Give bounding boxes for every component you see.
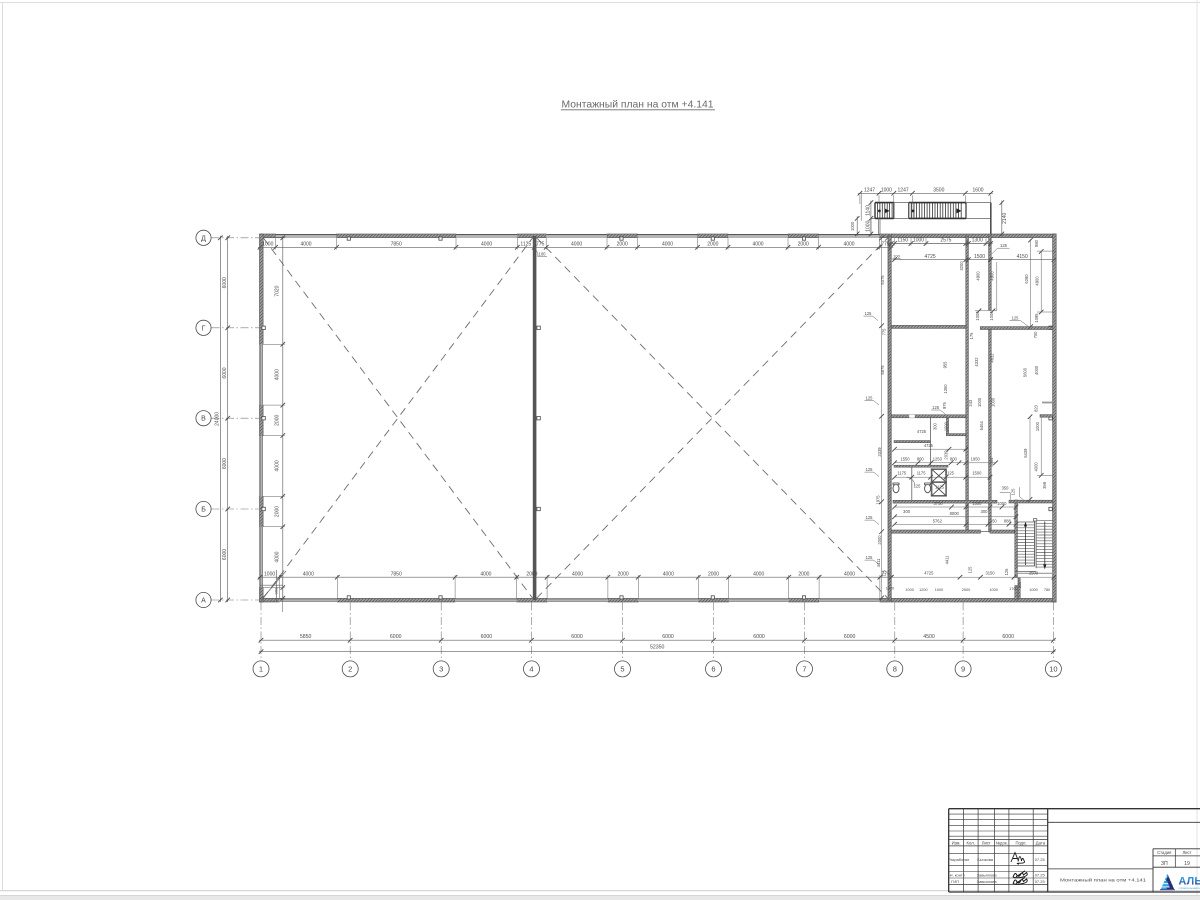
svg-text:2140: 2140 <box>1002 213 1008 224</box>
svg-text:7: 7 <box>802 665 806 674</box>
svg-text:5850: 5850 <box>300 634 312 640</box>
svg-text:4000: 4000 <box>1033 462 1038 472</box>
svg-text:4000: 4000 <box>275 369 281 380</box>
svg-text:820: 820 <box>1034 404 1039 412</box>
svg-text:4411: 4411 <box>945 555 950 565</box>
svg-text:125: 125 <box>1012 316 1020 321</box>
svg-text:строительная компания: строительная компания <box>1179 886 1200 890</box>
svg-text:4000: 4000 <box>663 571 674 577</box>
svg-text:4000: 4000 <box>300 242 311 248</box>
svg-text:Лист: Лист <box>1182 850 1191 855</box>
svg-text:243: 243 <box>968 399 973 407</box>
svg-text:1000: 1000 <box>935 588 943 592</box>
svg-text:2000: 2000 <box>617 242 628 248</box>
svg-text:775: 775 <box>882 328 887 336</box>
svg-text:800: 800 <box>917 456 925 461</box>
svg-text:4900: 4900 <box>976 271 981 281</box>
svg-text:1000: 1000 <box>989 311 994 321</box>
svg-text:1095: 1095 <box>1034 313 1039 323</box>
svg-text:3750: 3750 <box>934 501 944 506</box>
svg-text:1000: 1000 <box>850 221 855 231</box>
svg-text:1500: 1500 <box>974 254 985 260</box>
svg-text:4000: 4000 <box>753 571 764 577</box>
svg-text:4725: 4725 <box>924 443 934 448</box>
svg-text:4632: 4632 <box>990 353 995 363</box>
svg-text:52350: 52350 <box>650 644 665 650</box>
svg-text:Разработал: Разработал <box>948 857 969 862</box>
svg-text:ГИП: ГИП <box>951 879 959 884</box>
svg-text:1000: 1000 <box>944 421 949 431</box>
svg-text:1000: 1000 <box>997 501 1007 506</box>
svg-text:Д: Д <box>201 235 206 242</box>
svg-text:Монтажный план на отм +4.141: Монтажный план на отм +4.141 <box>1060 876 1147 882</box>
svg-text:6280: 6280 <box>1024 274 1029 284</box>
svg-text:775: 775 <box>882 569 887 577</box>
svg-text:4000: 4000 <box>752 242 763 248</box>
svg-text:1000: 1000 <box>264 571 275 577</box>
svg-text:2: 2 <box>348 665 352 674</box>
svg-text:Лист: Лист <box>982 841 991 846</box>
svg-text:10: 10 <box>1049 665 1057 674</box>
svg-text:2500: 2500 <box>962 588 970 592</box>
svg-text:4000: 4000 <box>303 571 314 577</box>
svg-text:125: 125 <box>967 566 972 574</box>
svg-text:100: 100 <box>893 253 900 258</box>
svg-text:9: 9 <box>961 665 965 674</box>
svg-text:4000: 4000 <box>844 571 855 577</box>
svg-text:07.25: 07.25 <box>1035 872 1046 877</box>
svg-text:6000: 6000 <box>662 634 674 640</box>
svg-text:1700: 1700 <box>1009 587 1017 591</box>
svg-text:1250: 1250 <box>933 456 943 461</box>
svg-text:2000: 2000 <box>877 535 882 545</box>
svg-text:3339: 3339 <box>877 447 882 457</box>
svg-text:4000: 4000 <box>571 242 582 248</box>
svg-text:В: В <box>201 416 206 423</box>
svg-text:800: 800 <box>950 456 958 461</box>
svg-text:7850: 7850 <box>391 571 402 577</box>
svg-text:Стадия: Стадия <box>1157 850 1171 855</box>
svg-text:2000: 2000 <box>798 242 809 248</box>
svg-text:1000: 1000 <box>881 188 892 194</box>
svg-text:1000: 1000 <box>977 397 982 407</box>
svg-text:350: 350 <box>1002 485 1010 490</box>
svg-text:975: 975 <box>942 401 947 409</box>
svg-text:5564: 5564 <box>989 457 994 467</box>
svg-text:Завьялова: Завьялова <box>977 879 998 884</box>
svg-text:1500: 1500 <box>972 501 982 506</box>
svg-text:4000: 4000 <box>572 571 583 577</box>
svg-text:125: 125 <box>865 311 873 316</box>
svg-text:6000: 6000 <box>481 634 493 640</box>
svg-text:8000: 8000 <box>950 511 960 516</box>
svg-text:175: 175 <box>969 332 974 340</box>
svg-text:125: 125 <box>1011 488 1016 496</box>
svg-text:Завьялова: Завьялова <box>977 872 998 877</box>
svg-text:1: 1 <box>259 665 263 674</box>
svg-text:1300: 1300 <box>972 238 983 244</box>
svg-text:4: 4 <box>529 665 533 674</box>
svg-text:2000: 2000 <box>275 415 281 426</box>
svg-text:6: 6 <box>711 665 715 674</box>
svg-text:7850: 7850 <box>391 242 402 248</box>
svg-text:300: 300 <box>933 422 938 430</box>
svg-text:1320: 1320 <box>886 587 894 591</box>
svg-text:359: 359 <box>1042 481 1047 489</box>
svg-text:6000: 6000 <box>390 634 402 640</box>
svg-text:5439: 5439 <box>1023 448 1028 458</box>
svg-text:100: 100 <box>539 251 547 256</box>
svg-text:300: 300 <box>903 509 911 514</box>
svg-text:8: 8 <box>893 665 897 674</box>
svg-text:1000: 1000 <box>913 238 924 244</box>
svg-text:1000: 1000 <box>905 588 913 592</box>
svg-text:1000: 1000 <box>262 242 273 248</box>
svg-text:2000: 2000 <box>707 242 718 248</box>
svg-text:6000: 6000 <box>571 634 583 640</box>
svg-text:4000: 4000 <box>1034 365 1039 375</box>
svg-text:2500: 2500 <box>1029 571 1039 576</box>
svg-text:125: 125 <box>866 515 874 520</box>
svg-text:Б: Б <box>201 507 206 514</box>
svg-text:07.25: 07.25 <box>1035 857 1046 862</box>
svg-text:1500: 1500 <box>972 471 982 476</box>
svg-text:4000: 4000 <box>843 242 854 248</box>
svg-text:1600: 1600 <box>972 188 983 194</box>
svg-text:Кол.: Кол. <box>967 841 975 846</box>
svg-text:4900: 4900 <box>990 271 995 281</box>
svg-text:1000: 1000 <box>1029 588 1037 592</box>
svg-text:700: 700 <box>1033 331 1038 339</box>
svg-text:2000: 2000 <box>526 571 537 577</box>
svg-text:960: 960 <box>274 587 279 594</box>
svg-text:1200: 1200 <box>919 588 927 592</box>
svg-text:6000: 6000 <box>222 458 228 469</box>
svg-text:3200: 3200 <box>959 261 964 271</box>
svg-text:6000: 6000 <box>222 277 228 288</box>
svg-text:19: 19 <box>1184 861 1190 867</box>
svg-text:125: 125 <box>1000 243 1008 248</box>
svg-text:2000: 2000 <box>618 571 629 577</box>
svg-text:6000: 6000 <box>1002 634 1014 640</box>
svg-text:5762: 5762 <box>933 519 943 524</box>
svg-text:1000: 1000 <box>1035 421 1040 431</box>
svg-text:4150: 4150 <box>1017 254 1028 260</box>
svg-text:125: 125 <box>914 484 922 489</box>
svg-text:1247: 1247 <box>898 188 909 194</box>
svg-text:1140: 1140 <box>865 205 871 216</box>
svg-text:7020: 7020 <box>275 285 281 296</box>
svg-text:1247: 1247 <box>864 188 875 194</box>
svg-text:6000: 6000 <box>844 634 856 640</box>
svg-text:125: 125 <box>1004 568 1009 576</box>
svg-text:980: 980 <box>1034 239 1039 247</box>
svg-text:4500: 4500 <box>923 634 935 640</box>
svg-text:125: 125 <box>866 467 874 472</box>
svg-text:1350: 1350 <box>943 384 948 394</box>
svg-text:1000: 1000 <box>991 397 996 407</box>
svg-text:955: 955 <box>943 361 948 369</box>
svg-text:Дата: Дата <box>1036 841 1046 846</box>
svg-text:4000: 4000 <box>480 571 491 577</box>
svg-text:6000: 6000 <box>222 367 228 378</box>
svg-text:2125: 2125 <box>945 471 955 476</box>
svg-text:125: 125 <box>932 405 940 410</box>
svg-text:4000: 4000 <box>662 242 673 248</box>
svg-text:24000: 24000 <box>215 412 221 426</box>
svg-text:3150: 3150 <box>985 571 995 576</box>
svg-text:4900: 4900 <box>1035 276 1040 286</box>
svg-text:4725: 4725 <box>924 571 934 576</box>
svg-text:1550: 1550 <box>900 456 910 461</box>
svg-text:07.25: 07.25 <box>1035 879 1046 884</box>
svg-text:4000: 4000 <box>481 242 492 248</box>
svg-text:5875: 5875 <box>880 365 885 375</box>
svg-text:1175: 1175 <box>917 471 927 476</box>
svg-text:1125: 1125 <box>520 242 531 248</box>
svg-text:4411: 4411 <box>876 558 881 568</box>
svg-text:А: А <box>201 598 206 605</box>
svg-text:6000: 6000 <box>753 634 765 640</box>
svg-text:2000: 2000 <box>708 571 719 577</box>
svg-text:4725: 4725 <box>917 429 927 434</box>
svg-text:2000: 2000 <box>798 571 809 577</box>
svg-text:125: 125 <box>866 555 874 560</box>
svg-text:780: 780 <box>1044 588 1050 592</box>
svg-text:ЗП: ЗП <box>1161 861 1168 867</box>
svg-text:1125: 1125 <box>935 485 945 490</box>
svg-text:775: 775 <box>881 242 890 248</box>
svg-text:1150: 1150 <box>897 238 908 244</box>
svg-text:Бычкова: Бычкова <box>977 857 994 862</box>
svg-text:2575: 2575 <box>940 238 951 244</box>
svg-text:2000: 2000 <box>275 506 281 517</box>
svg-text:Изм.: Изм. <box>952 841 961 846</box>
svg-text:1000: 1000 <box>975 311 980 321</box>
svg-text:5600: 5600 <box>1023 367 1028 377</box>
svg-text:775: 775 <box>536 242 545 248</box>
svg-text:5375: 5375 <box>880 275 885 285</box>
svg-text:Г: Г <box>202 325 206 332</box>
svg-text:4332: 4332 <box>974 357 979 367</box>
svg-text:1175: 1175 <box>897 471 907 476</box>
svg-text:Подп.: Подп. <box>1015 841 1026 846</box>
svg-text:1000: 1000 <box>865 220 871 231</box>
svg-text:Монтажный план на отм +4.141: Монтажный план на отм +4.141 <box>562 99 714 111</box>
svg-text:Н. контр: Н. контр <box>950 872 966 877</box>
svg-text:6000: 6000 <box>222 549 228 560</box>
svg-text:№док.: №док. <box>996 841 1008 846</box>
svg-text:2039: 2039 <box>944 450 949 460</box>
svg-text:5: 5 <box>620 665 624 674</box>
svg-text:1975: 1975 <box>876 495 881 505</box>
svg-text:4000: 4000 <box>275 460 281 471</box>
svg-text:1950: 1950 <box>971 456 981 461</box>
svg-text:300: 300 <box>981 509 989 514</box>
svg-text:800: 800 <box>1018 582 1022 588</box>
svg-text:5464: 5464 <box>979 421 984 431</box>
svg-text:4725: 4725 <box>925 254 936 260</box>
svg-text:3500: 3500 <box>933 188 944 194</box>
svg-text:125: 125 <box>866 396 874 401</box>
svg-text:4000: 4000 <box>275 551 281 562</box>
svg-text:1000: 1000 <box>989 588 997 592</box>
svg-text:3: 3 <box>439 665 443 674</box>
